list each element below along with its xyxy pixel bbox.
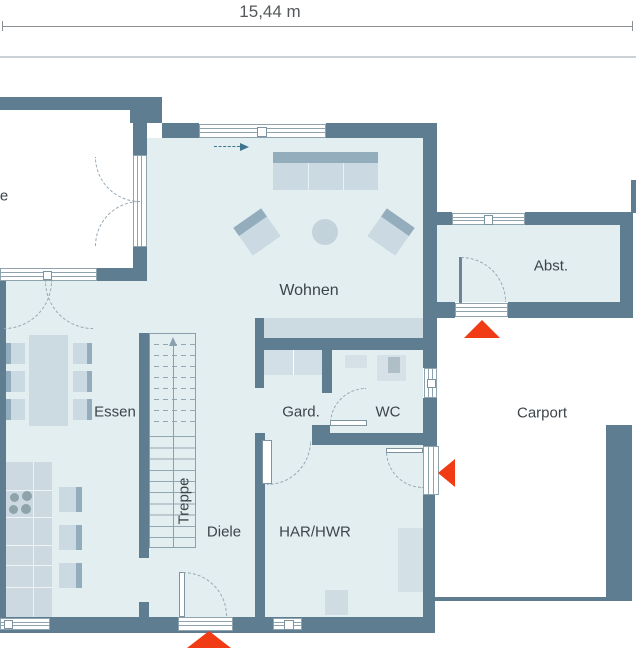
chair-back xyxy=(87,343,92,364)
room-label-treppe: Treppe xyxy=(176,478,193,525)
flow-arrow-dashes xyxy=(214,146,240,147)
carport-bottom-edge xyxy=(435,597,606,601)
wall-abst-top-right xyxy=(525,212,633,225)
dining-chair xyxy=(73,343,92,364)
wall-stair-bottom-stub xyxy=(139,602,149,633)
wall-right-mid xyxy=(423,398,437,446)
wall-gard-wc-divider xyxy=(322,347,332,393)
window-handle-icon xyxy=(4,620,13,629)
counter-divider xyxy=(5,565,52,566)
dining-chair xyxy=(6,399,25,420)
wall-terrace-corner xyxy=(130,97,162,123)
floor-plan: 15,44 m xyxy=(0,0,636,648)
kitchen-counter xyxy=(5,462,52,617)
wall-right-upper xyxy=(423,123,437,368)
sideboard xyxy=(264,318,423,338)
room-label-wohnen: Wohnen xyxy=(279,282,338,300)
dining-chair xyxy=(6,371,25,392)
room-label-carport: Carport xyxy=(517,405,567,422)
room-label-garderobe: Gard. xyxy=(282,404,320,421)
carport-floor xyxy=(435,318,606,597)
wall-left-exterior xyxy=(0,280,6,617)
wall-wohnen-top-left xyxy=(162,123,199,138)
wall-abst-bottom-right xyxy=(508,302,633,318)
wall-gard-left xyxy=(255,318,264,388)
wall-gard-wc-bottom xyxy=(312,433,423,445)
wall-right-lower xyxy=(423,495,435,633)
room-label-diele: Diele xyxy=(207,524,241,541)
window-wc-right xyxy=(424,368,437,398)
door-abst xyxy=(455,303,508,317)
sofa-back xyxy=(273,152,378,163)
wc-toilet xyxy=(377,355,406,381)
window-handle-icon xyxy=(427,379,436,388)
wall-abst-top-left xyxy=(436,212,452,225)
stool-back xyxy=(76,525,82,550)
chair-back xyxy=(6,343,11,364)
wall-stair-side xyxy=(139,333,149,558)
counter-divider xyxy=(33,462,34,617)
stair-up-arrow-icon xyxy=(169,337,177,346)
stair-center-line xyxy=(173,346,174,547)
door-entrance-carport xyxy=(423,446,439,495)
cooktop-burner-icon xyxy=(22,491,32,501)
window-har-bottom xyxy=(273,618,302,630)
counter-divider xyxy=(5,587,52,588)
dining-chair xyxy=(73,399,92,420)
toilet-bowl xyxy=(388,357,400,373)
section-line xyxy=(0,56,636,58)
chair-back xyxy=(87,371,92,392)
wall-right-edge-sliver xyxy=(631,180,636,213)
dining-chair xyxy=(73,371,92,392)
wall-terrace-right-lower xyxy=(133,247,147,268)
utility-appliance xyxy=(398,528,423,592)
wall-wohnen-top-right xyxy=(326,123,437,138)
room-label-essen: Essen xyxy=(94,404,136,421)
window-handle-icon xyxy=(484,215,493,225)
sofa-seat-divider xyxy=(343,163,344,190)
room-label-wc: WC xyxy=(376,404,401,421)
dimension-label: 15,44 m xyxy=(239,2,300,22)
wc-sink xyxy=(345,355,367,368)
wardrobe-closet xyxy=(263,349,323,375)
chair-back xyxy=(87,399,92,420)
window-abst-top xyxy=(452,213,525,225)
wall-terrace-bottom xyxy=(97,268,147,281)
bar-stool xyxy=(59,487,82,512)
room-label-terrace-partial: e xyxy=(0,188,8,205)
wall-below-sideboard xyxy=(264,338,423,350)
sofa xyxy=(273,163,378,190)
window-wohnen-top xyxy=(199,124,326,138)
stool-back xyxy=(76,487,82,512)
window-handle-icon xyxy=(43,271,52,280)
door-front xyxy=(178,617,233,631)
door-terrace-essen xyxy=(0,268,97,281)
counter-divider xyxy=(5,545,52,546)
stool-back xyxy=(76,563,82,588)
room-label-har-hwr: HAR/HWR xyxy=(279,524,351,541)
sofa-seat-divider xyxy=(308,163,309,190)
flow-arrow-head-icon xyxy=(240,143,249,151)
entrance-marker-icon xyxy=(187,631,231,648)
dining-chair xyxy=(6,343,25,364)
wall-carport-right xyxy=(606,425,632,601)
wall-gard-wc-bottom-step xyxy=(312,425,330,433)
closet-divider xyxy=(293,349,294,375)
room-label-abstellraum: Abst. xyxy=(534,258,568,275)
entrance-marker-icon xyxy=(464,320,500,338)
bar-stool xyxy=(59,563,82,588)
counter-divider xyxy=(5,517,52,518)
window-handle-icon xyxy=(284,620,294,630)
window-handle-icon xyxy=(257,127,267,137)
wall-terrace-right-upper xyxy=(133,123,147,155)
coffee-table-round xyxy=(312,219,338,245)
dimension-line xyxy=(2,26,633,27)
bar-stool xyxy=(59,525,82,550)
dining-table xyxy=(29,335,68,426)
chair-back xyxy=(6,399,11,420)
cooktop-burner-icon xyxy=(21,504,31,514)
entrance-marker-icon xyxy=(438,459,455,487)
cooktop-burner-icon xyxy=(9,505,18,514)
chair-back xyxy=(6,371,11,392)
window-kitchen-bottom xyxy=(0,618,50,630)
dimension-tick-left xyxy=(2,21,3,31)
utility-appliance xyxy=(325,590,348,615)
cooktop-burner-icon xyxy=(10,493,19,502)
wall-abst-bottom-left xyxy=(423,302,455,318)
dimension-tick-right xyxy=(632,21,633,31)
